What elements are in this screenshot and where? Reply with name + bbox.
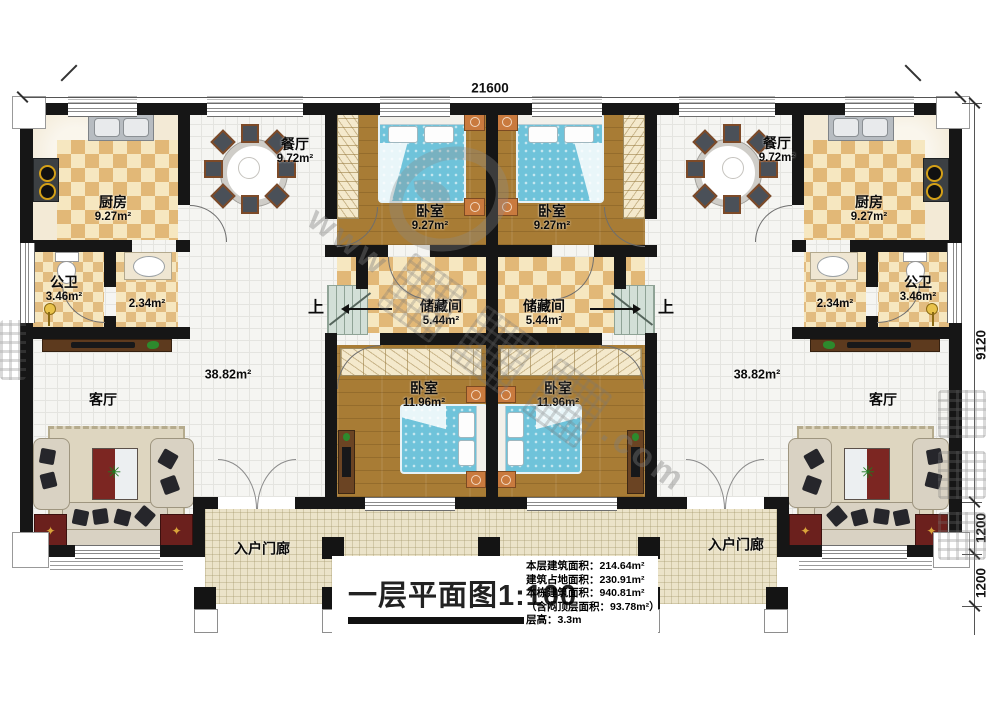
room-label-kitchen-right: 厨房9.27m² (851, 194, 887, 224)
window (532, 103, 602, 117)
extension-line (962, 606, 982, 607)
room-label-dining-left: 餐厅9.72m² (277, 136, 313, 166)
kitchen-sink (828, 113, 894, 141)
living-area-right: 38.82m² (734, 368, 781, 383)
kitchen-checker-floor (804, 140, 925, 240)
wall (484, 333, 602, 345)
bed-large-bedroom (494, 404, 582, 474)
room-label-bedroom-small-right: 卧室9.27m² (534, 203, 570, 233)
room-label-kitchen-left: 厨房9.27m² (95, 194, 131, 224)
dimension-top-width: 21600 (471, 81, 509, 96)
room-label-bedroom-large-right: 卧室11.96m² (537, 380, 579, 410)
sofa-three-seat (814, 502, 920, 548)
vanity (810, 252, 858, 280)
stat-attic-area: （含闷顶层面积：93.78m²） (526, 601, 660, 615)
stat-floor-height: 层高：3.3m (526, 614, 660, 628)
coffee-table: ✳ (844, 448, 890, 500)
stove (923, 158, 949, 202)
wall (866, 252, 878, 287)
room-label-bathroom-right: 公卫3.46m² (900, 274, 936, 304)
sofa-loveseat (912, 438, 949, 510)
stat-footprint-area: 建筑占地面积：230.91m² (526, 574, 660, 588)
wall (792, 327, 962, 339)
window (822, 545, 907, 559)
wall (594, 245, 657, 257)
room-label-hallway-left: 2.34m² (129, 298, 165, 312)
room-label-hallway-right: 2.34m² (817, 298, 853, 312)
floor-plan-canvas: ✳ (0, 0, 1000, 706)
wall (645, 333, 657, 509)
window (947, 243, 962, 323)
room-label-bedroom-small-left: 卧室9.27m² (412, 203, 448, 233)
nightstand (497, 113, 518, 131)
extension-line (962, 103, 982, 104)
porch-label-left: 入户门廊 (234, 541, 290, 558)
window (845, 103, 914, 117)
tv-cabinet (810, 339, 940, 352)
dimension-right-bay: 1200 (974, 513, 989, 543)
stairs-up-label-left: 上 (308, 300, 324, 319)
corner-leader-tick (905, 65, 922, 82)
window (679, 103, 775, 117)
room-label-dining-right: 餐厅9.72m² (759, 135, 795, 165)
room-label-storage-left: 储藏间5.44m² (420, 298, 462, 328)
wall (614, 257, 626, 289)
sofa-armchair (788, 438, 832, 508)
room-label-living-right: 客厅 (869, 392, 897, 409)
stat-floor-area: 本层建筑面积：214.64m² (526, 560, 660, 574)
title-underline (348, 617, 524, 624)
extension-line (962, 502, 982, 503)
stat-building-area: 本栋建筑面积：940.81m² (526, 587, 660, 601)
party-wall (486, 103, 498, 509)
nightstand (496, 471, 516, 488)
porch-label-right: 入户门廊 (708, 537, 764, 554)
window (527, 497, 617, 511)
room-label-living-left: 客厅 (89, 392, 117, 409)
living-area-left: 38.82m² (205, 368, 252, 383)
room-label-bathroom-left: 公卫3.46m² (46, 274, 82, 304)
room-label-bedroom-large-left: 卧室11.96m² (403, 380, 445, 410)
porch-column-base (764, 609, 788, 633)
title-block: 一层平面图1:100 本层建筑面积：214.64m² 建筑占地面积：230.91… (332, 556, 658, 652)
room-label-storage-right: 储藏间5.44m² (523, 298, 565, 328)
nightstand (496, 386, 516, 403)
wall (645, 103, 657, 219)
bathroom-lamp-stem (932, 312, 934, 326)
dimension-right-main: 9120 (974, 330, 989, 360)
window-sill (799, 559, 932, 570)
stats-block: 本层建筑面积：214.64m² 建筑占地面积：230.91m² 本栋建筑面积：9… (526, 560, 660, 628)
stairs-up-label-right: 上 (658, 300, 674, 319)
extension-line (962, 554, 982, 555)
stairs-direction-arrow (590, 308, 634, 310)
wall (792, 240, 806, 252)
wardrobe (623, 113, 645, 219)
dimension-right-porch: 1200 (974, 568, 989, 598)
side-table (789, 514, 822, 547)
nightstand (497, 198, 518, 216)
porch-column (766, 587, 788, 609)
exterior-pier (933, 532, 970, 568)
wall (850, 240, 962, 252)
bedroom-desk (627, 430, 644, 494)
dimension-line-top (22, 97, 962, 98)
bed-small-bedroom (516, 113, 604, 203)
